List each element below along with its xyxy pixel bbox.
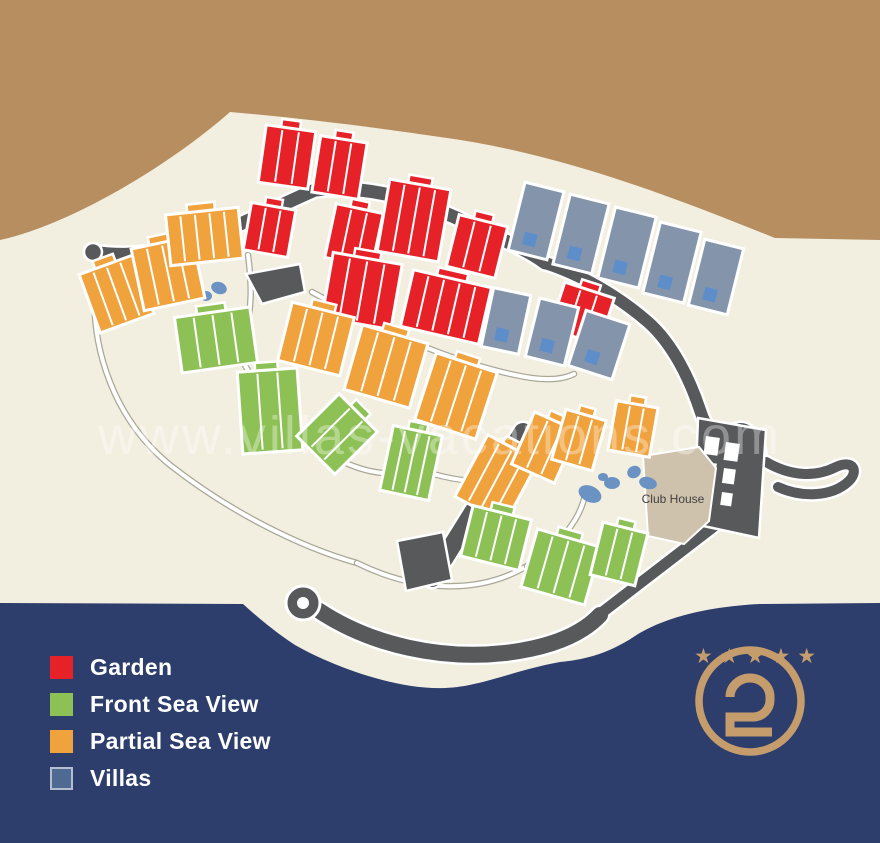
villas-color-swatch: [50, 767, 73, 790]
pond: [598, 473, 608, 481]
court: [720, 492, 733, 506]
legend-label: Front Sea View: [90, 691, 259, 718]
legend-label: Garden: [90, 654, 172, 681]
logo-ring: [699, 650, 801, 752]
legend-item-garden: Garden: [50, 655, 271, 679]
roundabout-center: [297, 597, 309, 609]
road-area: [397, 532, 452, 591]
front-sea-view-color-swatch: [50, 693, 73, 716]
court: [723, 442, 739, 462]
logo-monogram: [730, 678, 772, 732]
villa-pool: [494, 327, 509, 342]
legend-label: Partial Sea View: [90, 728, 271, 755]
legend-item-partial-sea-view: Partial Sea View: [50, 729, 271, 753]
court: [722, 468, 736, 485]
legend-label: Villas: [90, 765, 151, 792]
club-house-label: Club House: [642, 492, 705, 506]
garden-color-swatch: [50, 656, 73, 679]
resort-logo-emblem: [687, 641, 813, 763]
partial-sea-view-color-swatch: [50, 730, 73, 753]
court: [703, 436, 719, 456]
resort-logo: ★★★★★: [687, 641, 813, 669]
resort-map-poster: Club House www.villas-vacations.com Gard…: [0, 0, 880, 843]
legend-item-villas: Villas: [50, 766, 271, 790]
front-sea-view-building: [237, 360, 303, 454]
map-legend: Garden Front Sea View Partial Sea View V…: [50, 655, 271, 803]
legend-item-front-sea-view: Front Sea View: [50, 692, 271, 716]
